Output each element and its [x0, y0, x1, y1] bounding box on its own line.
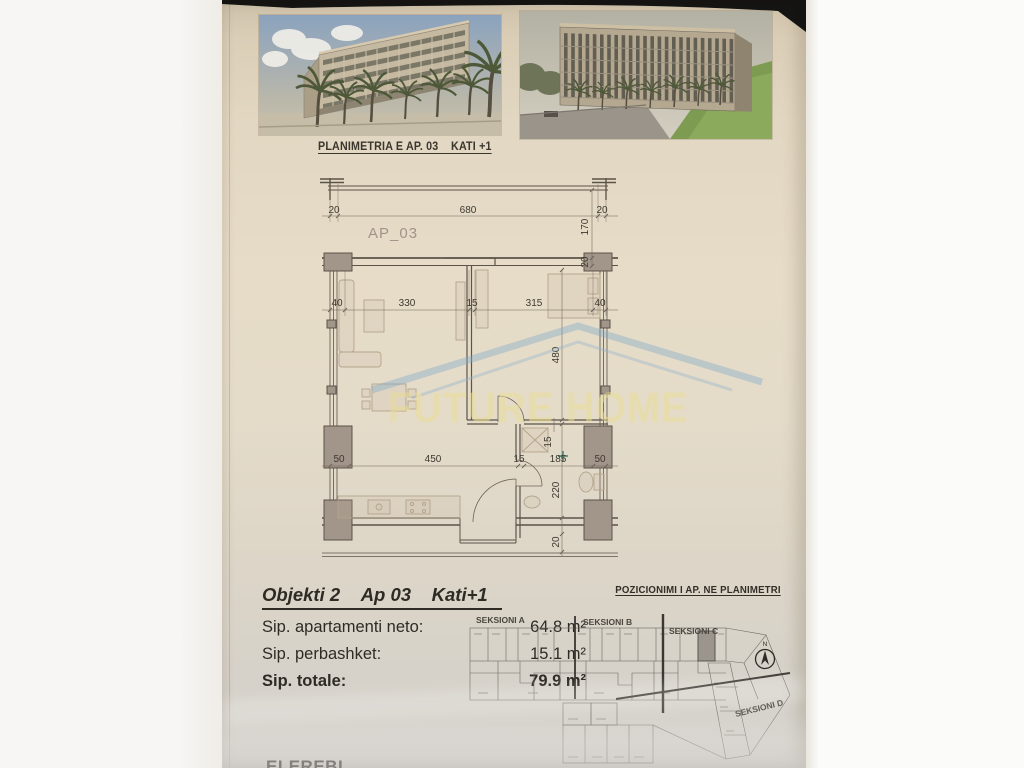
svg-text:SEKSIONI A: SEKSIONI A — [476, 615, 525, 625]
svg-text:40: 40 — [331, 298, 343, 309]
building-render-left-svg — [259, 15, 501, 135]
paper-sheet: PLANIMETRIA E AP. 03 KATI +1 — [222, 0, 806, 768]
background-left-margin — [0, 0, 222, 768]
svg-text:SEKSIONI C: SEKSIONI C — [669, 626, 718, 636]
svg-text:480: 480 — [551, 346, 562, 363]
floor-plan: 20 680 20 170 20 40 330 15 315 40 480 50… — [310, 170, 630, 570]
photographed-listing-sheet: PLANIMETRIA E AP. 03 KATI +1 — [0, 0, 1024, 768]
svg-text:20: 20 — [328, 205, 340, 216]
svg-text:50: 50 — [594, 454, 606, 465]
svg-text:SEKSIONI B: SEKSIONI B — [583, 617, 632, 627]
svg-text:170: 170 — [580, 218, 591, 235]
svg-text:15: 15 — [543, 436, 554, 448]
svg-text:185: 185 — [550, 454, 567, 465]
building-block — [560, 23, 752, 112]
building-render-right — [519, 10, 773, 140]
svg-text:20: 20 — [596, 205, 608, 216]
svg-text:20: 20 — [580, 256, 591, 268]
paper-bottom-sheen — [222, 700, 806, 768]
detail-label: Sip. apartamenti neto: — [262, 617, 423, 637]
svg-text:50: 50 — [333, 454, 345, 465]
svg-text:450: 450 — [425, 454, 442, 465]
svg-text:15: 15 — [513, 454, 525, 465]
paper-fold-line — [229, 0, 230, 768]
plan-title: PLANIMETRIA E AP. 03 KATI +1 — [318, 141, 492, 153]
svg-text:330: 330 — [399, 298, 416, 309]
position-map-heading: POZICIONIMI I AP. NE PLANIMETRI — [604, 585, 792, 596]
building-render-right-svg — [520, 11, 772, 139]
detail-label: Sip. perbashket: — [262, 644, 381, 664]
svg-text:220: 220 — [551, 481, 562, 498]
details-heading: Objekti 2 Ap 03 Kati+1 — [262, 584, 502, 610]
unit-label: AP_03 — [368, 225, 418, 242]
building-render-left — [258, 14, 502, 136]
svg-text:20: 20 — [551, 536, 562, 548]
svg-text:40: 40 — [594, 298, 606, 309]
svg-text:315: 315 — [526, 298, 543, 309]
compass-north-label: N — [763, 641, 768, 648]
svg-text:680: 680 — [460, 205, 477, 216]
background-right-margin — [806, 0, 1024, 768]
detail-label: Sip. totale: — [262, 671, 346, 691]
svg-text:15: 15 — [466, 298, 478, 309]
